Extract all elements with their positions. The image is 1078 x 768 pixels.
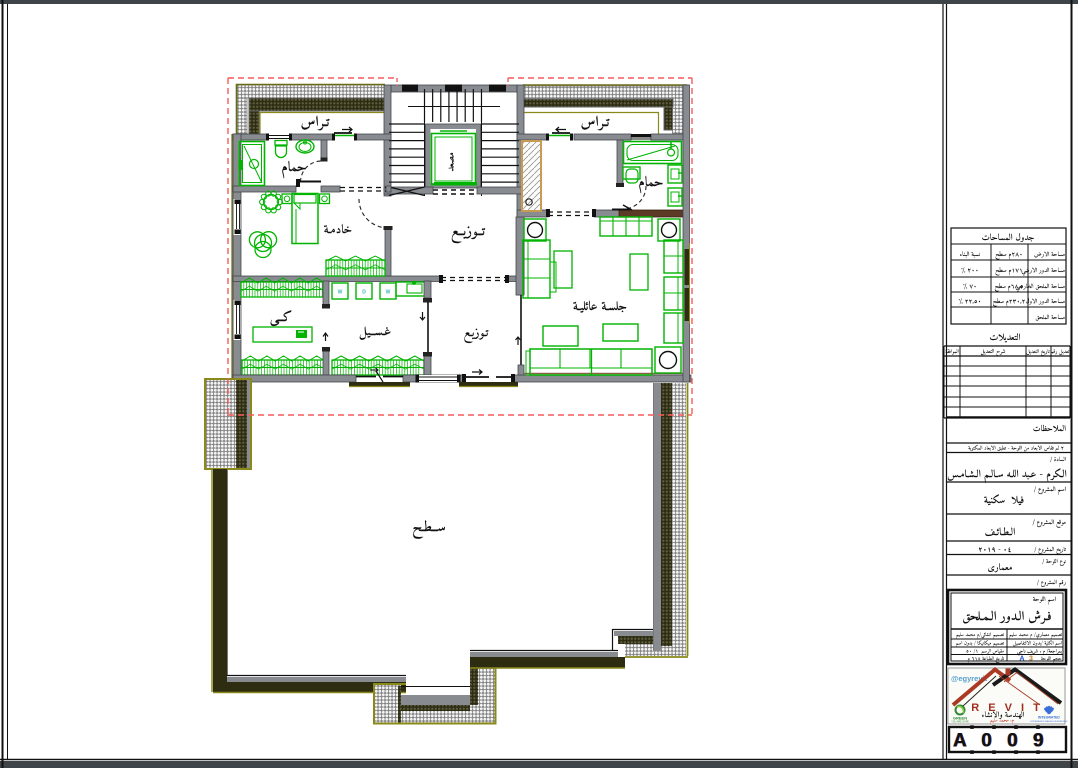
svg-text:EXPERIENCE MAKES DIFFERENCE: EXPERIENCE MAKES DIFFERENCE [1031,720,1068,723]
svg-text:YOU ARE SAFE: YOU ARE SAFE [951,721,969,724]
svg-text:3: 3 [1029,656,1033,663]
svg-text:R E V I T: R E V I T [971,702,1043,714]
svg-text:INTEGRATED: INTEGRATED [1038,716,1060,720]
svg-text:A 0 0 9: A 0 0 9 [953,731,1049,752]
svg-text:D: D [362,290,366,296]
svg-text:A: A [1019,656,1024,663]
svg-text:W: W [386,290,391,296]
svg-text:W: W [338,290,343,296]
